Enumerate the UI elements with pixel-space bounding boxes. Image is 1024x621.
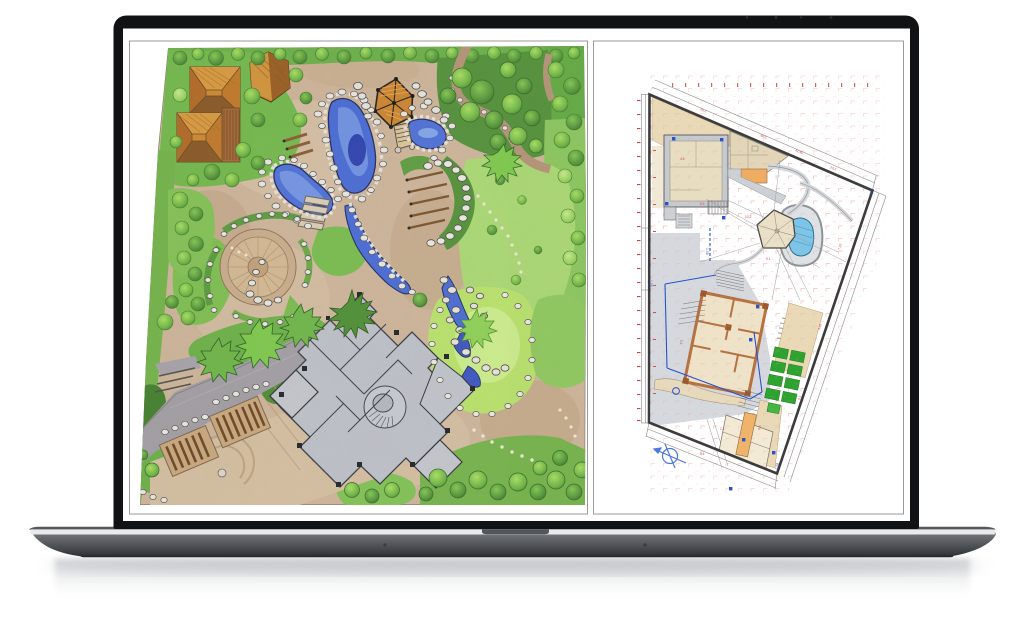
svg-text:6.3: 6.3 [700, 202, 705, 206]
svg-text:8.6: 8.6 [700, 452, 705, 456]
svg-text:1.08: 1.08 [705, 248, 709, 255]
svg-text:5.2: 5.2 [679, 340, 683, 345]
svg-text:2.2: 2.2 [720, 427, 725, 431]
svg-text:1.06: 1.06 [649, 280, 653, 287]
svg-text:9.1: 9.1 [766, 257, 771, 261]
svg-text:4.5: 4.5 [680, 157, 685, 161]
svg-text:10.2: 10.2 [745, 215, 751, 219]
